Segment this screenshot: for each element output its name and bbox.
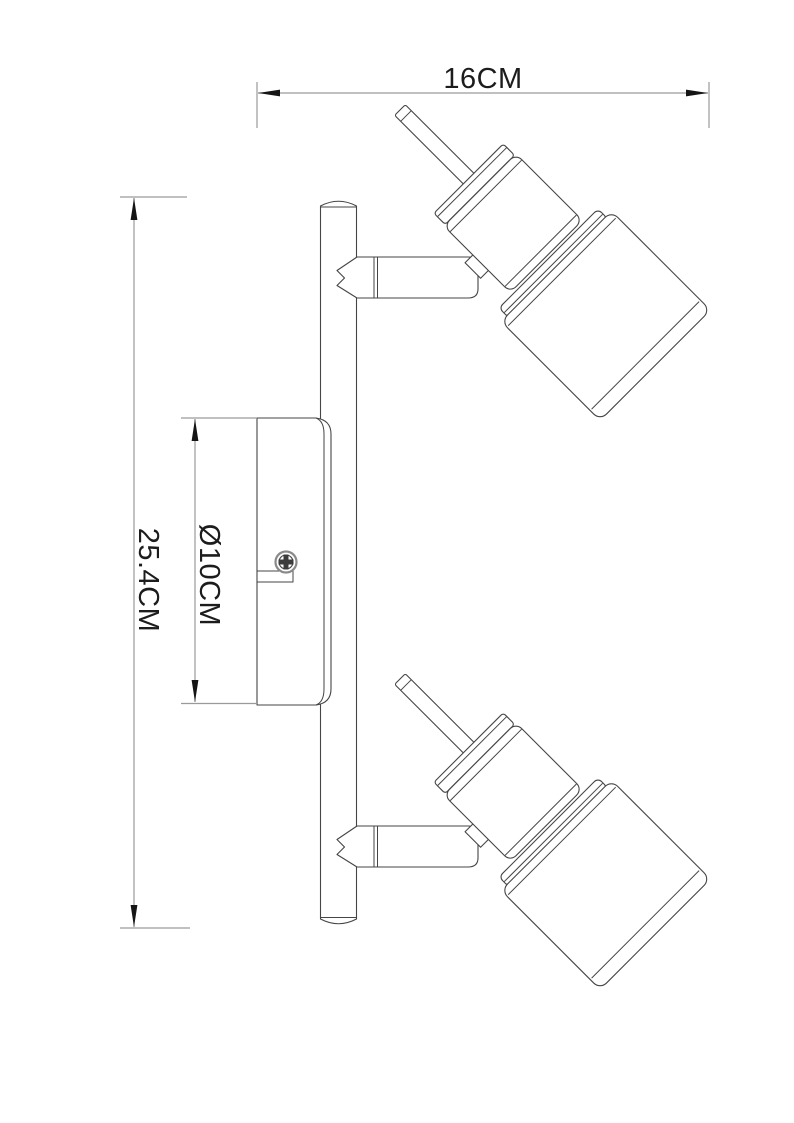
diameter-arrow-top xyxy=(192,419,199,441)
height-dimension-label: 25.4CM xyxy=(132,528,164,633)
spotlight-dimension-drawing: 16CM 25.4CM Ø10CM xyxy=(0,0,794,1123)
technical-drawing-page: 16CM 25.4CM Ø10CM xyxy=(0,0,794,1123)
dimension-height: 25.4CM xyxy=(120,197,190,928)
width-dimension-label: 16CM xyxy=(443,63,522,95)
height-arrow-top xyxy=(131,198,138,220)
diameter-arrow-bottom xyxy=(192,680,199,702)
height-arrow-bottom xyxy=(131,905,138,927)
dimension-diameter: Ø10CM xyxy=(181,418,257,704)
width-arrow-right xyxy=(686,90,708,97)
width-arrow-left xyxy=(258,90,280,97)
diameter-dimension-label: Ø10CM xyxy=(193,524,225,626)
mounting-screw xyxy=(276,552,297,573)
spotlight-assembly-top xyxy=(337,55,710,421)
spotlight-assembly-bottom xyxy=(337,624,710,990)
dimension-width: 16CM xyxy=(257,63,709,128)
canopy-plate xyxy=(257,418,331,705)
